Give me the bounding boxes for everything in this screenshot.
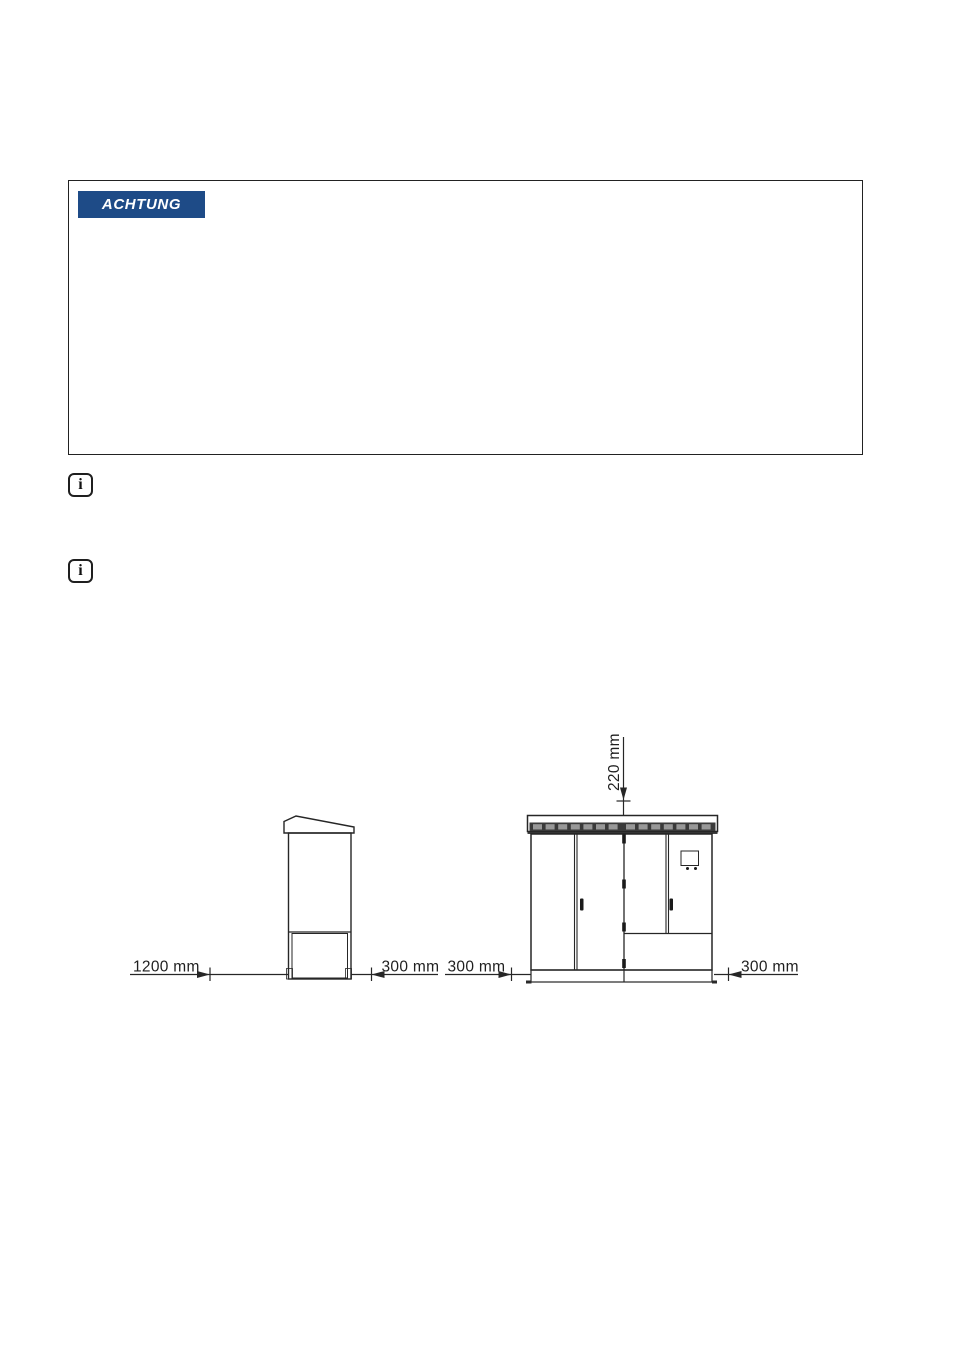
display-panel — [681, 851, 699, 866]
side-view-body — [289, 833, 352, 979]
dimension-front-left: 300 mm — [445, 959, 531, 982]
front-view-top-clearance-label: 220 mm — [606, 733, 623, 791]
door-handle — [670, 899, 674, 911]
ground-mark-right — [712, 981, 717, 984]
front-view-cabinet — [526, 816, 718, 984]
dimension-front-top: 220 mm — [606, 733, 631, 816]
side-view-right-clearance-label: 300 mm — [382, 959, 440, 976]
side-view-roof — [284, 816, 354, 833]
front-view-plinth — [531, 970, 712, 982]
warning-badge-label: ACHTUNG — [102, 196, 181, 213]
info-icon-glyph: i — [78, 562, 82, 580]
front-view-right-clearance-label: 300 mm — [741, 959, 799, 976]
indicator-dot — [686, 867, 689, 870]
door-handle — [580, 899, 584, 911]
side-view-plinth — [292, 934, 348, 979]
side-view-left-clearance-label: 1200 mm — [133, 959, 200, 976]
info-icon: i — [68, 559, 93, 583]
side-view-cabinet — [284, 816, 354, 979]
indicator-dot — [694, 867, 697, 870]
front-view-body — [531, 834, 712, 970]
dimension-side-left: 1200 mm — [130, 959, 289, 982]
info-icon-glyph: i — [78, 476, 82, 494]
dimension-arrow — [729, 971, 742, 978]
manual-page: ACHTUNG i i — [0, 0, 954, 1350]
dimension-side-right: 300 mm — [351, 959, 439, 982]
clearance-diagram: 1200 mm 300 mm 300 mm 300 mm — [120, 715, 810, 1000]
front-view-vent-strip — [530, 823, 716, 832]
dimension-front-right: 300 mm — [714, 959, 799, 982]
warning-badge: ACHTUNG — [78, 191, 205, 218]
ground-mark-left — [526, 981, 532, 984]
info-icon: i — [68, 473, 93, 497]
front-view-left-clearance-label: 300 mm — [448, 959, 506, 976]
warning-box: ACHTUNG — [68, 180, 863, 455]
